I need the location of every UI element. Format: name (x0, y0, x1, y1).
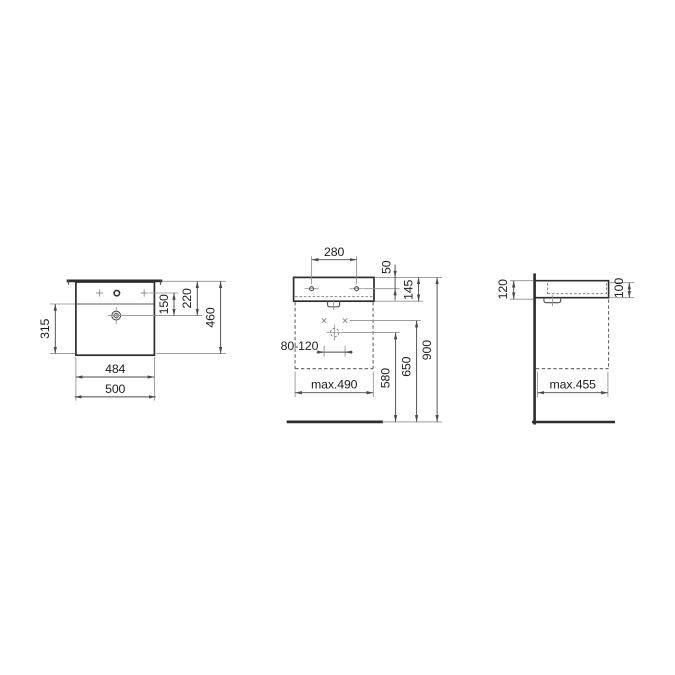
dim-label-100: 100 (612, 278, 626, 298)
dim-label-650: 650 (400, 356, 414, 376)
front-view: 280 50 145 80-120 max.490 580 650 (281, 245, 442, 422)
cabinet-outline-front (295, 302, 373, 369)
dimension-rim-height: 900 (420, 277, 437, 422)
dim-label-500: 500 (105, 382, 125, 396)
dimension-supply-spacing: 80-120 (281, 339, 353, 354)
dimension-back-to-drain: 220 (180, 281, 197, 315)
dim-label-50: 50 (380, 260, 394, 274)
dim-label-280: 280 (324, 245, 344, 259)
dimension-bowl-depth: 315 (38, 304, 55, 354)
side-view: 120 100 max.455 (496, 275, 634, 424)
dimension-top-to-fixing-holes: 50 (380, 260, 397, 300)
dim-label-120: 120 (496, 279, 510, 299)
dim-label-max455: max.455 (549, 378, 596, 392)
washbasin-technical-drawing: 315 150 220 460 484 500 (0, 0, 675, 675)
dimension-height-at-wall: 120 (496, 279, 514, 299)
dim-label-150: 150 (157, 294, 171, 314)
dim-label-80-120: 80-120 (281, 339, 319, 353)
dimension-cabinet-depth: max.455 (537, 378, 608, 393)
fixing-holes (305, 287, 364, 291)
tap-hole (114, 290, 119, 295)
drain-connection-symbol (327, 325, 343, 341)
supply-connection-marks (322, 318, 348, 323)
cabinet-outline-side (536, 300, 609, 369)
dimension-overall-depth: 460 (203, 281, 220, 353)
dimension-height-at-front: 100 (612, 278, 629, 298)
dimension-tap-to-drain: 150 (157, 293, 174, 316)
front-view-outline (294, 277, 374, 310)
dim-label-484: 484 (105, 362, 125, 376)
dim-label-900: 900 (420, 340, 434, 360)
dim-label-220: 220 (180, 288, 194, 308)
dimension-cabinet-width: max.490 (295, 378, 373, 393)
dimension-fixing-hole-spacing: 280 (312, 245, 357, 260)
side-view-outline (536, 281, 609, 307)
dim-label-580: 580 (379, 368, 393, 388)
drawing-canvas: 315 150 220 460 484 500 (0, 0, 675, 675)
dim-label-max490: max.490 (311, 378, 358, 392)
dimension-body-width: 484 (76, 362, 154, 377)
dimension-overall-width: 500 (75, 382, 156, 397)
tap-hole-marks (96, 289, 148, 296)
top-view: 315 150 220 460 484 500 (38, 280, 226, 400)
dimension-supply-height: 650 (400, 321, 417, 422)
dimension-body-height: 145 (401, 277, 418, 301)
dim-label-145: 145 (401, 279, 415, 299)
dim-label-315: 315 (38, 318, 52, 338)
dim-label-460: 460 (203, 307, 217, 327)
dimension-drain-height: 580 (379, 333, 396, 422)
